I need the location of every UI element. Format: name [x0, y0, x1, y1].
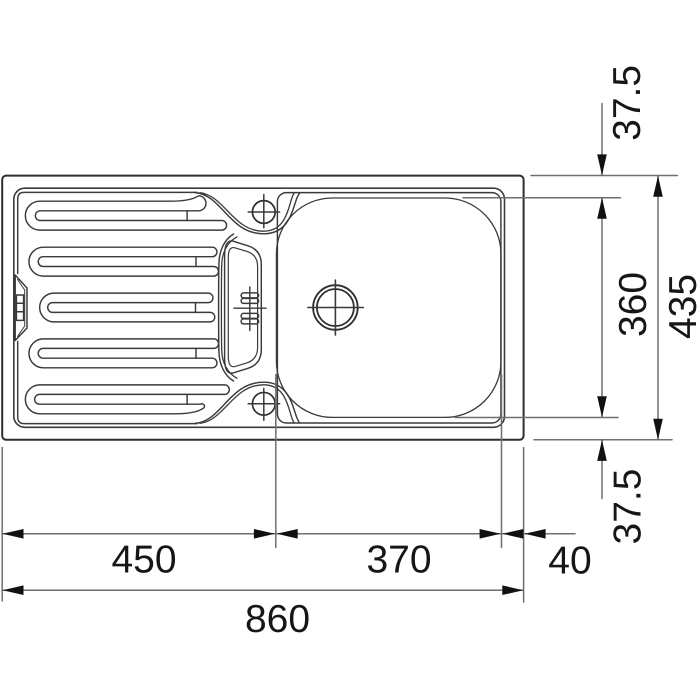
svg-text:450: 450 — [111, 539, 176, 582]
svg-text:40: 40 — [548, 540, 591, 583]
svg-text:37.5: 37.5 — [607, 469, 650, 545]
svg-text:370: 370 — [366, 539, 431, 582]
svg-text:860: 860 — [245, 598, 310, 641]
svg-text:37.5: 37.5 — [606, 65, 649, 141]
svg-text:360: 360 — [612, 272, 655, 337]
svg-text:435: 435 — [662, 274, 700, 339]
